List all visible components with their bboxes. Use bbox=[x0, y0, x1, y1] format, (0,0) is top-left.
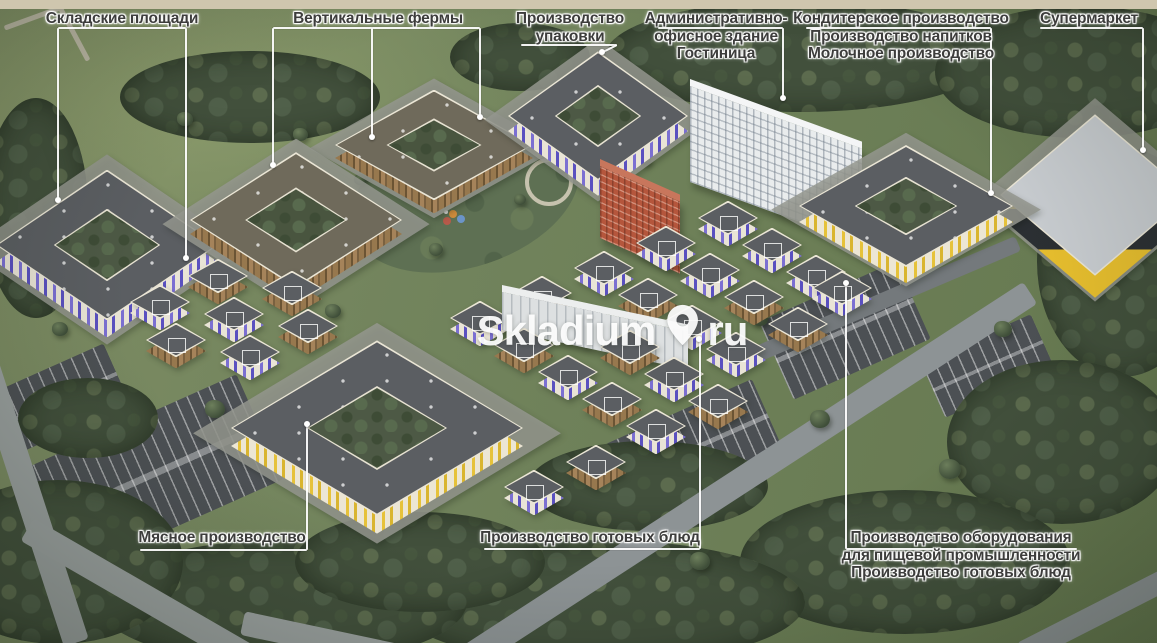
callout-admin-office-hotel: Административно-офисное зданиеГостиница bbox=[645, 10, 788, 63]
leader-dot bbox=[1140, 147, 1146, 153]
callout-warehouse-areas: Складские площади bbox=[46, 10, 198, 28]
callout-line: Производство готовых блюд bbox=[480, 529, 700, 547]
tree bbox=[690, 552, 710, 570]
callout-line: Гостиница bbox=[645, 45, 788, 63]
leader-dot bbox=[369, 134, 375, 140]
roof-skylight bbox=[284, 286, 303, 301]
building-unit-26 bbox=[768, 307, 828, 353]
callout-line: офисное здание bbox=[645, 28, 788, 46]
leader-dot bbox=[843, 280, 849, 286]
callout-line: Административно- bbox=[645, 10, 788, 28]
leader-dot bbox=[270, 162, 276, 168]
roof-skylight bbox=[648, 424, 667, 439]
leader-line bbox=[1142, 28, 1144, 150]
callout-line: Производство оборудования bbox=[842, 529, 1081, 547]
leader-dot bbox=[183, 255, 189, 261]
leader-line bbox=[484, 548, 700, 550]
roof-skylight bbox=[152, 300, 171, 315]
building-unit-29 bbox=[688, 384, 748, 430]
callout-line: Производство готовых блюд bbox=[842, 564, 1081, 582]
roof-skylight bbox=[596, 266, 615, 281]
tree bbox=[293, 128, 308, 142]
leader-line bbox=[272, 28, 274, 165]
tree bbox=[810, 410, 830, 428]
roof-skylight bbox=[168, 338, 187, 353]
roof-skylight bbox=[702, 268, 721, 283]
roof-skylight bbox=[790, 322, 809, 337]
callout-line: Производство напитков bbox=[793, 28, 1009, 46]
roof-skylight bbox=[604, 397, 623, 412]
callout-supermarket: Супермаркет bbox=[1040, 10, 1138, 28]
callout-ready-meals-production: Производство готовых блюд bbox=[480, 529, 700, 547]
roof-skylight bbox=[226, 312, 245, 327]
leader-line bbox=[185, 28, 187, 258]
roof-skylight bbox=[764, 243, 783, 258]
watermark: Skladium ru bbox=[477, 307, 748, 355]
roof-skylight bbox=[300, 324, 319, 339]
leader-line bbox=[140, 549, 307, 551]
roof-skylight bbox=[210, 274, 229, 289]
callout-food-equipment-ready-meals: Производство оборудованиядля пищевой про… bbox=[842, 529, 1081, 582]
leader-line bbox=[371, 28, 373, 137]
tree bbox=[205, 400, 225, 418]
tree bbox=[939, 459, 961, 479]
callout-confectionery-drinks-dairy: Кондитерское производствоПроизводство на… bbox=[793, 10, 1009, 63]
building-unit-3 bbox=[146, 323, 206, 369]
leader-dot bbox=[696, 336, 702, 342]
leader-dot bbox=[55, 197, 61, 203]
roof-skylight bbox=[658, 241, 677, 256]
leader-dot bbox=[477, 114, 483, 120]
roof-skylight bbox=[666, 372, 685, 387]
callout-meat-production: Мясное производство bbox=[138, 529, 305, 547]
watermark-brand: Skladium bbox=[477, 307, 656, 355]
tree bbox=[429, 243, 443, 256]
leader-dot bbox=[988, 190, 994, 196]
leader-line bbox=[479, 28, 481, 117]
building-unit-31 bbox=[504, 470, 564, 516]
leader-dot bbox=[304, 421, 310, 427]
roof-skylight bbox=[560, 370, 579, 385]
leader-line bbox=[306, 424, 308, 550]
callout-line: Супермаркет bbox=[1040, 10, 1138, 28]
callout-line: Кондитерское производство bbox=[793, 10, 1009, 28]
callout-line: для пищевой промышленности bbox=[842, 547, 1081, 565]
callout-line: Вертикальные фермы bbox=[293, 10, 463, 28]
roof-skylight bbox=[834, 286, 853, 301]
building-unit-30 bbox=[566, 445, 626, 491]
roof-skylight bbox=[588, 460, 607, 475]
callout-line: Производство bbox=[516, 10, 624, 28]
roof-skylight bbox=[526, 485, 545, 500]
callout-line: Мясное производство bbox=[138, 529, 305, 547]
callout-line: упаковки bbox=[516, 28, 624, 46]
top-border-strip bbox=[0, 0, 1157, 9]
callout-packaging-production: Производствоупаковки bbox=[516, 10, 624, 45]
roof-skylight bbox=[640, 293, 659, 308]
building-packaging-ring bbox=[508, 51, 688, 196]
forest-patch-14 bbox=[18, 378, 158, 458]
building-unit-28 bbox=[626, 409, 686, 455]
roof-skylight bbox=[746, 295, 765, 310]
leader-dot bbox=[599, 49, 605, 55]
callout-line: Складские площади bbox=[46, 10, 198, 28]
building-meat-ring bbox=[231, 340, 523, 533]
leader-line bbox=[699, 339, 701, 549]
roof-skylight bbox=[720, 216, 739, 231]
tree bbox=[994, 321, 1012, 337]
leader-line bbox=[845, 283, 847, 549]
callout-line: Молочное производство bbox=[793, 45, 1009, 63]
roof-skylight bbox=[710, 399, 729, 414]
site-plan-render: Skladium ru Складские площадиВертикальны… bbox=[0, 0, 1157, 643]
callout-vertical-farms: Вертикальные фермы bbox=[293, 10, 463, 28]
leader-dot bbox=[780, 95, 786, 101]
leader-line bbox=[57, 28, 59, 200]
watermark-tld: ru bbox=[707, 307, 747, 355]
